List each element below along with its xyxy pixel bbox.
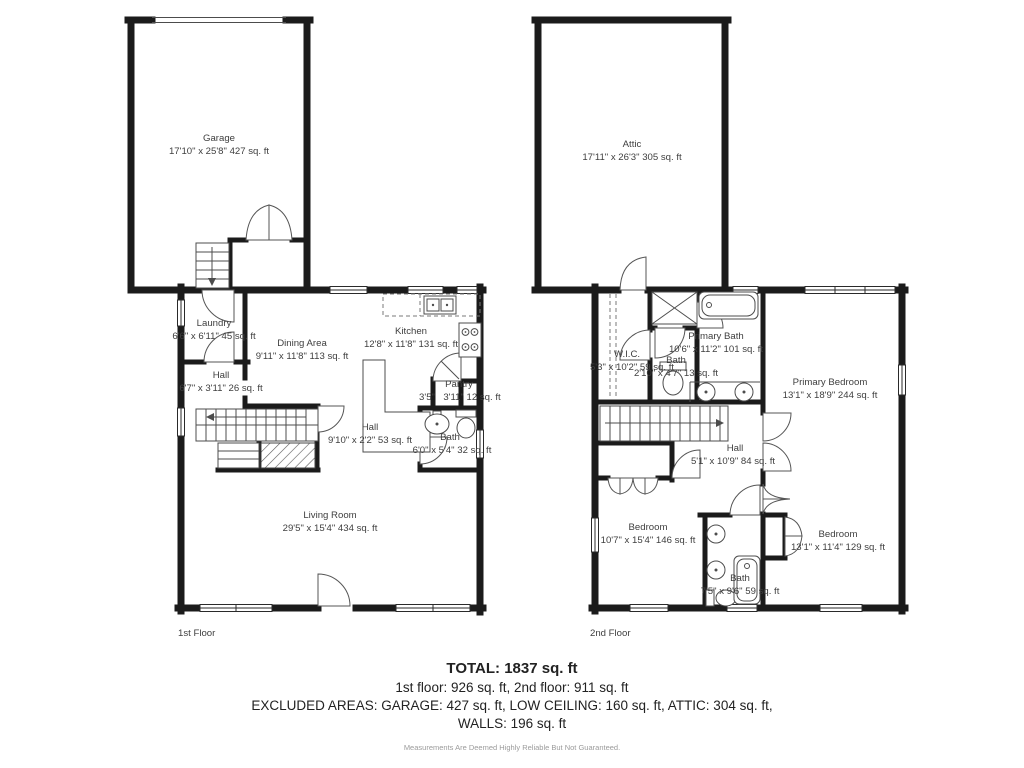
svg-text:9'11" x 11'8" 113 sq. ft: 9'11" x 11'8" 113 sq. ft <box>256 351 349 362</box>
svg-text:2'10" x 4'7" 13 sq. ft: 2'10" x 4'7" 13 sq. ft <box>634 368 718 379</box>
svg-text:10'6" x 11'2" 101 sq. ft: 10'6" x 11'2" 101 sq. ft <box>669 344 763 355</box>
bath-bottom-door <box>730 485 760 515</box>
room-label-bedroom-left: Bedroom 10'7" x 15'4" 146 sq. ft <box>601 522 696 546</box>
svg-text:29'5" x 15'4" 434 sq. ft: 29'5" x 15'4" 434 sq. ft <box>283 523 378 534</box>
bathtub <box>699 292 758 319</box>
svg-text:Kitchen: Kitchen <box>395 326 427 337</box>
svg-text:9'10" x 2'2" 53 sq. ft: 9'10" x 2'2" 53 sq. ft <box>328 435 412 446</box>
svg-text:Bath: Bath <box>730 573 750 584</box>
svg-text:Living Room: Living Room <box>303 510 356 521</box>
window <box>805 287 895 294</box>
svg-text:13'1" x 11'4" 129 sq. ft: 13'1" x 11'4" 129 sq. ft <box>791 542 885 553</box>
svg-text:17'11" x 26'3" 305 sq. ft: 17'11" x 26'3" 305 sq. ft <box>582 152 682 163</box>
hall-door <box>318 406 344 432</box>
floorplan-page: Garage 17'10" x 25'8" 427 sq. ft Laundry… <box>0 0 1024 768</box>
primary-bedroom-door-1 <box>763 413 791 441</box>
svg-text:3'5": 3'5" <box>419 392 435 403</box>
svg-text:Bedroom: Bedroom <box>819 529 858 540</box>
svg-text:5'1" x 10'9" 84 sq. ft: 5'1" x 10'9" 84 sq. ft <box>691 456 775 467</box>
window <box>727 605 757 612</box>
svg-text:Hall: Hall <box>727 443 744 454</box>
stove <box>459 323 481 357</box>
window <box>899 365 906 395</box>
room-label-hall-small: Hall 6'7" x 3'11" 26 sq. ft <box>179 370 263 394</box>
summary-disclaimer: Measurements Are Deemed Highly Reliable … <box>0 743 1024 752</box>
wic-closet-rail <box>610 294 616 398</box>
svg-text:Primary Bath: Primary Bath <box>688 331 743 342</box>
window <box>200 605 272 612</box>
room-label-dining: Dining Area 9'11" x 11'8" 113 sq. ft <box>256 338 349 362</box>
room-label-primary-bedroom: Primary Bedroom 13'1" x 18'9" 244 sq. ft <box>783 377 878 401</box>
garage-bifold-doors <box>246 205 292 240</box>
svg-text:Dining Area: Dining Area <box>277 338 327 349</box>
room-label-kitchen: Kitchen 12'8" x 11'8" 131 sq. ft <box>364 326 458 350</box>
window <box>330 287 367 294</box>
svg-text:6'7" x 3'11" 26 sq. ft: 6'7" x 3'11" 26 sq. ft <box>179 383 263 394</box>
window <box>408 287 443 294</box>
room-dims: 17'10" x 25'8" 427 sq. ft <box>169 146 269 157</box>
window <box>178 300 185 326</box>
window <box>592 518 599 552</box>
window <box>457 287 477 294</box>
bedroom-right-double-doors <box>763 484 790 514</box>
low-ceiling-hatch <box>261 443 315 468</box>
room-label-living: Living Room 29'5" x 15'4" 434 sq. ft <box>283 510 378 534</box>
svg-text:Bedroom: Bedroom <box>629 522 668 533</box>
window <box>820 605 862 612</box>
svg-text:Laundry: Laundry <box>197 318 232 329</box>
summary-excluded-1: EXCLUDED AREAS: GARAGE: 427 sq. ft, LOW … <box>0 698 1024 713</box>
double-sinks <box>690 382 760 402</box>
floorplan-canvas: Garage 17'10" x 25'8" 427 sq. ft Laundry… <box>0 0 1024 768</box>
second-floor-plan: Attic 17'11" x 26'3" 305 sq. ft W.I.C. 5… <box>535 20 906 639</box>
x-closet <box>652 292 697 324</box>
summary-floors: 1st floor: 926 sq. ft, 2nd floor: 911 sq… <box>0 680 1024 695</box>
svg-text:3'11" 12 sq. ft: 3'11" 12 sq. ft <box>443 392 501 403</box>
summary-total: TOTAL: 1837 sq. ft <box>0 660 1024 677</box>
svg-text:6'6" x 6'11" 45 sq. ft: 6'6" x 6'11" 45 sq. ft <box>172 331 256 342</box>
room-label-garage: Garage 17'10" x 25'8" 427 sq. ft <box>169 133 269 157</box>
svg-text:Attic: Attic <box>623 139 642 150</box>
window <box>396 605 470 612</box>
room-label-attic: Attic 17'11" x 26'3" 305 sq. ft <box>582 139 682 163</box>
window <box>178 408 185 436</box>
svg-text:Hall: Hall <box>213 370 230 381</box>
svg-text:Bath: Bath <box>440 432 460 443</box>
room-name: Garage <box>203 133 235 144</box>
svg-text:7'5" x 9'6" 59 sq. ft: 7'5" x 9'6" 59 sq. ft <box>701 586 780 597</box>
svg-text:12'8" x 11'8" 131 sq. ft: 12'8" x 11'8" 131 sq. ft <box>364 339 458 350</box>
svg-text:Bath: Bath <box>666 355 686 366</box>
summary-block: TOTAL: 1837 sq. ft 1st floor: 926 sq. ft… <box>0 660 1024 752</box>
svg-text:W.I.C.: W.I.C. <box>614 349 640 360</box>
garage-steps <box>196 243 229 288</box>
svg-text:Pantry: Pantry <box>445 379 473 390</box>
bedroom-left-bifold-doors <box>608 478 658 494</box>
first-floor-plan: Garage 17'10" x 25'8" 427 sq. ft Laundry… <box>128 18 501 640</box>
window <box>630 605 668 612</box>
svg-text:Primary Bedroom: Primary Bedroom <box>793 377 868 388</box>
front-door <box>318 574 350 606</box>
svg-text:10'7" x 15'4" 146 sq. ft: 10'7" x 15'4" 146 sq. ft <box>601 535 696 546</box>
svg-text:6'0" x 5'4" 32 sq. ft: 6'0" x 5'4" 32 sq. ft <box>413 445 492 456</box>
second-floor-label: 2nd Floor <box>590 628 631 639</box>
room-label-bedroom-right: Bedroom 13'1" x 11'4" 129 sq. ft <box>791 529 885 553</box>
kitchen-sink <box>424 296 456 314</box>
svg-text:13'1" x 18'9" 244 sq. ft: 13'1" x 18'9" 244 sq. ft <box>783 390 878 401</box>
attic-door <box>620 257 646 290</box>
main-staircase <box>196 409 318 441</box>
garage-door-line <box>152 18 286 23</box>
summary-excluded-2: WALLS: 196 sq. ft <box>0 716 1024 731</box>
first-floor-label: 1st Floor <box>178 628 216 639</box>
second-floor-staircase <box>600 406 728 441</box>
svg-text:Hall: Hall <box>362 422 379 433</box>
winder-steps <box>218 443 259 468</box>
